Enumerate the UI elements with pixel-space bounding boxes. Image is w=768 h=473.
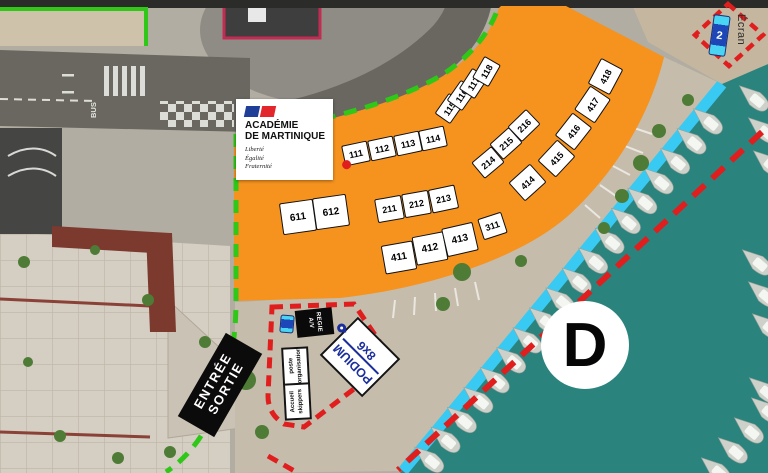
- poste-organisation-label: posteorganisation: [287, 347, 304, 384]
- booth-number: 118: [478, 62, 494, 80]
- logo-motto: LibertéÉgalitéFraternité: [245, 146, 333, 171]
- checkered-crossing: [160, 101, 234, 127]
- logo-title: ACADÉMIEDE MARTINIQUE: [245, 120, 333, 142]
- booth-number: 216: [515, 116, 533, 134]
- booth-212: 212: [401, 190, 432, 218]
- booth-number: 211: [381, 203, 397, 215]
- booth-number: 212: [408, 198, 425, 210]
- aerial-background: BUS: [0, 0, 768, 473]
- french-flag-icon: [245, 106, 333, 117]
- blurred-block: [0, 8, 145, 46]
- booth-611: 611: [279, 199, 317, 235]
- booth-number: 417: [584, 95, 601, 113]
- regie-av-label: REGIEA/V: [306, 312, 323, 334]
- booth-number: 415: [547, 149, 565, 167]
- booth-number: 111: [348, 147, 364, 160]
- booth-number: 215: [497, 134, 515, 151]
- ecran-label: Écran: [735, 14, 747, 66]
- top-strip: [0, 0, 768, 8]
- bus-lane-label: BUS: [89, 102, 98, 118]
- booth-number: 311: [484, 219, 501, 233]
- booth-number: 412: [421, 241, 439, 255]
- booth-number: 113: [400, 137, 416, 150]
- academie-logo: ACADÉMIEDE MARTINIQUE LibertéÉgalitéFrat…: [236, 99, 333, 180]
- screen-icon-small: [279, 314, 295, 333]
- booth-number: 214: [479, 153, 497, 170]
- zone-d-label: D: [563, 310, 608, 381]
- booth-number: 411: [390, 250, 408, 264]
- accueil-skippers-box: Accueilskippers: [285, 382, 310, 419]
- zone-d-marker: D: [541, 301, 629, 389]
- organisation-desks: posteorganisation Accueilskippers: [281, 346, 312, 420]
- booth-number: 114: [425, 132, 441, 145]
- booth-number: 413: [451, 232, 470, 246]
- booth-612: 612: [312, 194, 350, 230]
- event-site-map: BUS: [0, 0, 768, 473]
- booth-number: 112: [374, 142, 390, 155]
- left-building: [0, 128, 62, 234]
- booth-number: 416: [564, 122, 581, 140]
- regie-av-box: REGIEA/V: [295, 307, 335, 338]
- poste-organisation-box: posteorganisation: [283, 348, 308, 383]
- booth-number: 418: [597, 67, 613, 85]
- booth-number: 213: [435, 193, 452, 206]
- booth-number: 612: [322, 205, 340, 218]
- booth-211: 211: [374, 195, 405, 223]
- location-pin-icon: [337, 324, 346, 333]
- accueil-skippers-label: Accueilskippers: [289, 389, 305, 414]
- booth-411: 411: [381, 240, 418, 274]
- booth-number: 611: [289, 210, 307, 223]
- booth-number: 414: [518, 173, 536, 190]
- screen-number: 2: [716, 29, 724, 42]
